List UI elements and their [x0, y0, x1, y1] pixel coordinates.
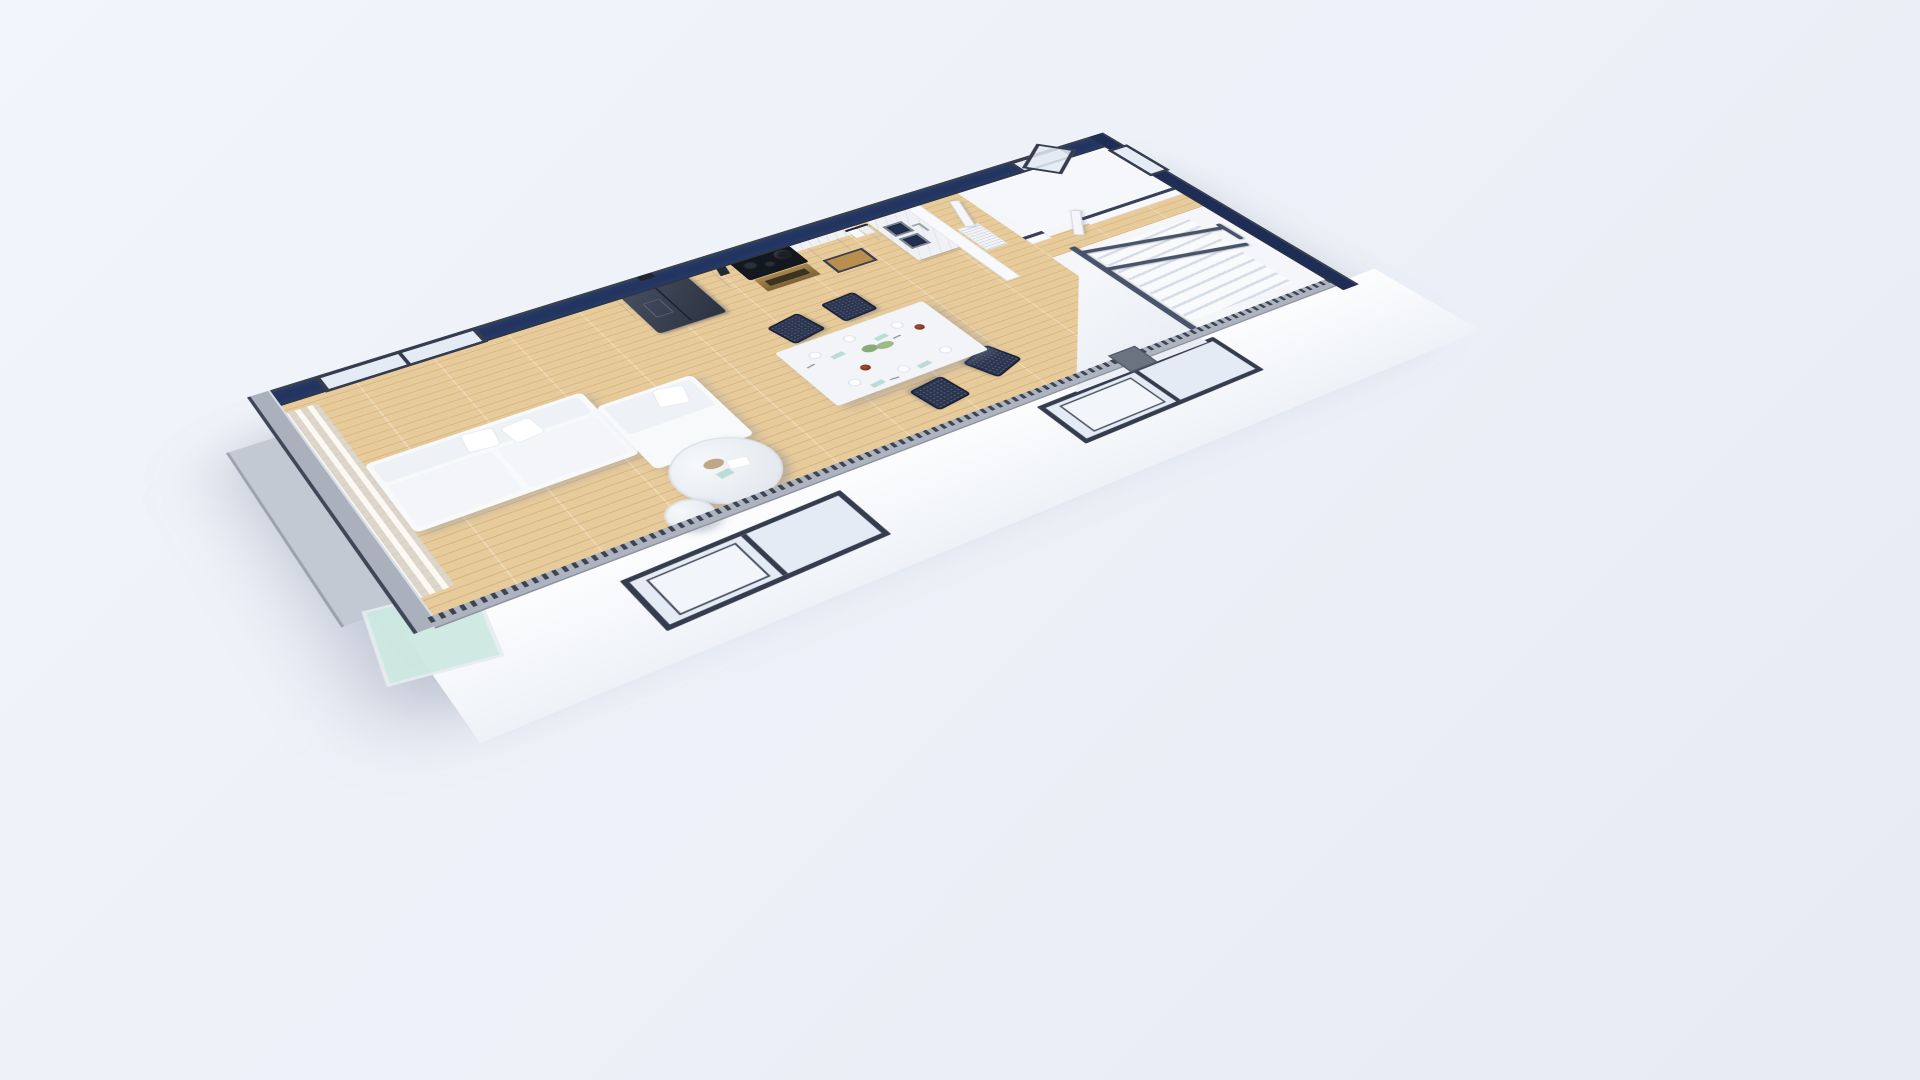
plate: [845, 377, 865, 388]
sink-basin: [898, 233, 931, 249]
window-mullion: [398, 353, 411, 365]
serving-bowl: [858, 363, 873, 371]
table-decor-sprig: [700, 457, 727, 472]
cutlery: [890, 376, 900, 380]
plate: [840, 334, 859, 344]
cutlery: [806, 364, 814, 369]
floor-plan-3d-model: [199, 125, 1481, 763]
plate: [894, 364, 914, 375]
wall-clamp: [636, 273, 655, 282]
plate: [936, 345, 956, 355]
table-decor-card: [726, 456, 752, 469]
render-background: [0, 0, 1920, 1080]
burner: [761, 260, 778, 269]
napkin: [870, 379, 886, 388]
napkin: [830, 351, 846, 359]
burner: [739, 260, 761, 271]
napkin: [916, 360, 932, 368]
window-sash: [1059, 377, 1166, 431]
plate: [805, 350, 825, 361]
plate: [887, 320, 906, 330]
table-decor-book: [716, 468, 735, 479]
window-sash: [646, 543, 771, 616]
cutlery: [892, 335, 901, 339]
serving-bowl: [912, 323, 927, 331]
